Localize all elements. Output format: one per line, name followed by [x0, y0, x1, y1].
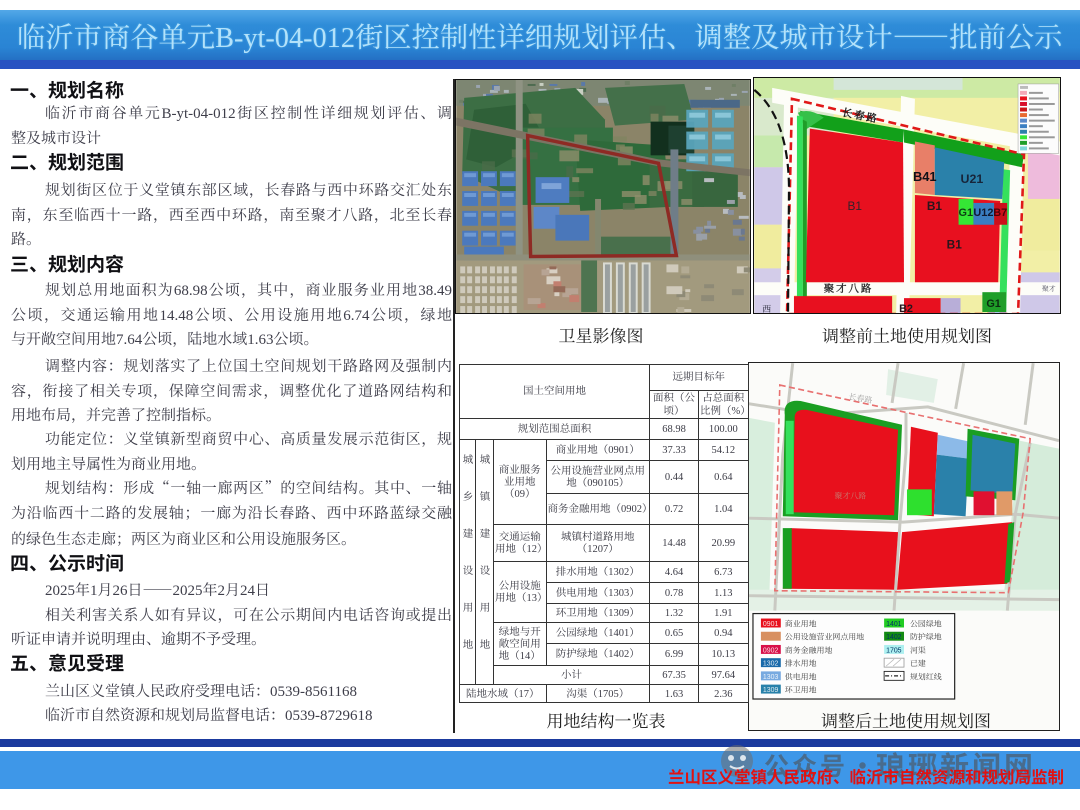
- svg-text:河渠: 河渠: [910, 645, 926, 656]
- svg-text:B2: B2: [899, 300, 913, 314]
- svg-text:B1: B1: [848, 197, 863, 214]
- svg-text:防护绿地: 防护绿地: [910, 632, 942, 643]
- svg-text:1302: 1302: [763, 658, 779, 668]
- svg-text:1402: 1402: [886, 631, 902, 641]
- svg-text:1303: 1303: [763, 671, 779, 681]
- svg-text:聚才八路: 聚才八路: [824, 280, 874, 295]
- svg-text:G1: G1: [959, 204, 974, 220]
- svg-text:聚才: 聚才: [1042, 283, 1056, 293]
- svg-text:0902: 0902: [763, 644, 779, 654]
- svg-text:U12: U12: [973, 204, 993, 220]
- svg-text:B1: B1: [927, 197, 943, 214]
- svg-text:1401: 1401: [886, 618, 902, 628]
- svg-text:G1: G1: [986, 295, 1001, 311]
- svg-text:0901: 0901: [763, 618, 779, 628]
- svg-text:环卫用地: 环卫用地: [785, 685, 817, 696]
- svg-text:U21: U21: [961, 169, 984, 187]
- svg-text:商业用地: 商业用地: [785, 618, 817, 629]
- svg-text:商务金融用地: 商务金融用地: [785, 645, 833, 656]
- svg-text:公用设施营业网点用地: 公用设施营业网点用地: [785, 632, 864, 643]
- svg-text:规划红线: 规划红线: [910, 671, 942, 682]
- svg-text:聚才八路: 聚才八路: [834, 490, 866, 501]
- svg-text:供电用地: 供电用地: [785, 671, 817, 682]
- svg-text:B7: B7: [993, 204, 1007, 220]
- svg-text:排水用地: 排水用地: [785, 658, 817, 669]
- svg-text:B41: B41: [913, 166, 937, 185]
- svg-text:1309: 1309: [763, 684, 779, 694]
- svg-text:B1: B1: [947, 236, 963, 253]
- svg-text:1705: 1705: [886, 644, 902, 654]
- svg-text:西: 西: [762, 302, 771, 314]
- svg-text:已建: 已建: [910, 658, 926, 669]
- svg-text:公园绿地: 公园绿地: [910, 618, 942, 629]
